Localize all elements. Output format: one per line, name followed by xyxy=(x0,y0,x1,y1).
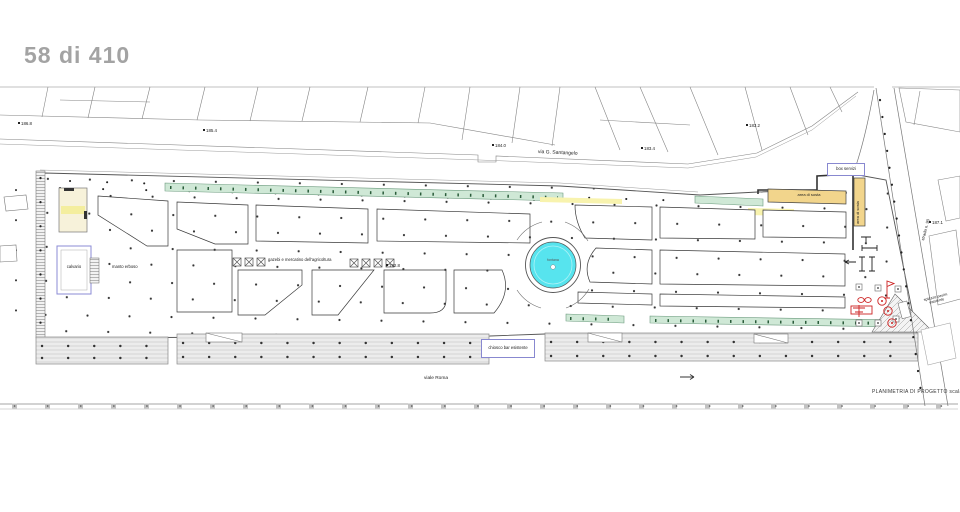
spot-elevation: 186.8 xyxy=(18,121,32,126)
fountain-center-jet xyxy=(551,265,556,270)
spot-elevation: 192.8 xyxy=(386,263,400,268)
spot-elevation: 185.4 xyxy=(203,128,217,133)
spot-elevation: 187.1 xyxy=(929,220,943,225)
spot-elevation: 183.2 xyxy=(746,123,760,128)
label-viale-roma: viale Roma xyxy=(424,376,448,382)
left-sidewalk xyxy=(0,171,45,338)
label-gazebi-mercatino: gazebi e mercatino dell'agricoltura xyxy=(268,258,331,263)
document-page: { "page_indicator": "58 di 410", "plan":… xyxy=(0,0,960,512)
bottom-curb xyxy=(0,404,958,409)
label-area-sosta-v: area di sosta xyxy=(856,201,861,224)
label-box-servizi: box servizi xyxy=(827,163,865,176)
steps xyxy=(90,258,99,283)
label-calvario: calvario xyxy=(58,265,90,270)
title-block: PLANIMETRIA DI PROGETTO scala 1:2 xyxy=(872,389,960,395)
label-manto-erboso: manto erboso xyxy=(112,265,138,270)
label-chiosco-bar: chiosco bar esistente xyxy=(481,339,535,358)
cream-building xyxy=(59,188,87,232)
bottom-strips xyxy=(36,333,918,364)
spot-elevation: 183.4 xyxy=(641,146,655,151)
spot-elevation: 184.0 xyxy=(492,143,506,148)
site-plan-drawing xyxy=(0,0,960,512)
label-area-sosta-h: area di sosta xyxy=(772,193,846,198)
flow-arrow-icon xyxy=(680,375,694,380)
label-fontana: fontana xyxy=(537,258,569,262)
